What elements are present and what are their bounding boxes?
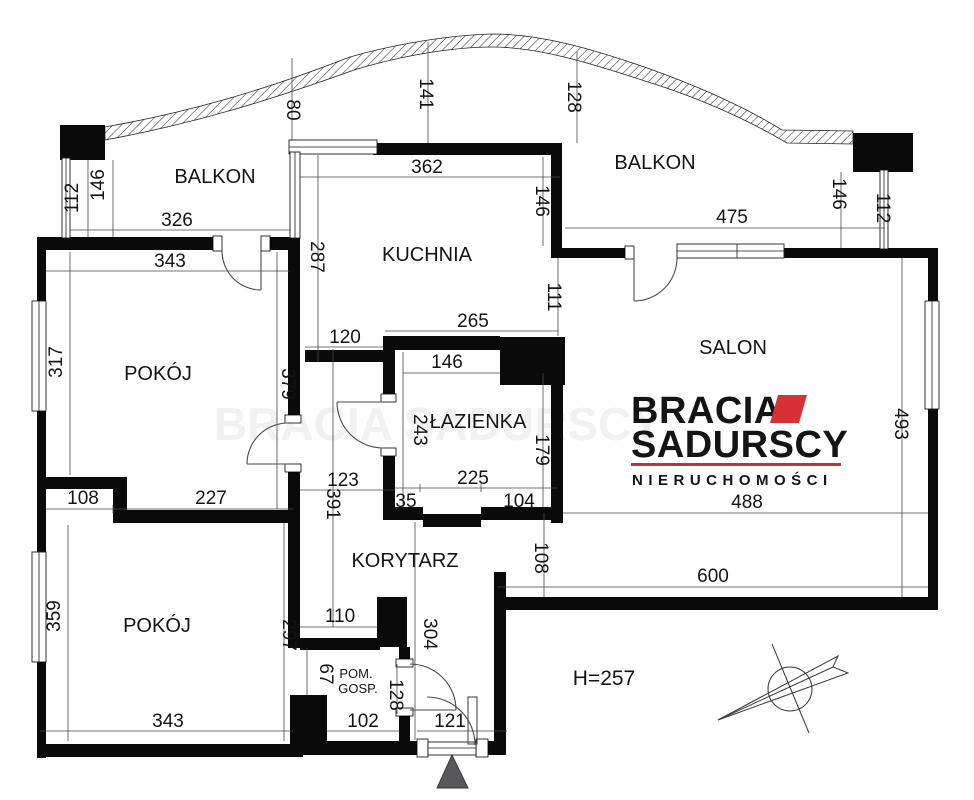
door-jamb: [396, 659, 413, 667]
dim-120: 120: [329, 327, 361, 348]
door-jamb: [476, 739, 488, 757]
wall-segment: [37, 744, 303, 757]
dim-141: 141: [415, 78, 436, 110]
room-label-pokoj-top: POKÓJ: [124, 362, 192, 385]
floor-plan-page: BRACIA SADURSCY: [0, 0, 974, 800]
balcony-pillar-left: [60, 125, 105, 160]
door-jamb: [625, 246, 634, 259]
room-label-korytarz: KORYTARZ: [351, 550, 458, 572]
dim-35: 35: [395, 491, 416, 512]
dim-287: 287: [306, 241, 327, 273]
dim-243: 243: [409, 414, 430, 446]
dim-67: 67: [315, 663, 336, 684]
dim-108-left: 108: [67, 488, 99, 509]
room-label-pom-gosp-1: POM.: [339, 666, 372, 681]
dim-128-top: 128: [563, 81, 584, 113]
dim-121: 121: [434, 711, 466, 732]
door-jamb: [381, 448, 396, 456]
dim-102: 102: [347, 711, 379, 732]
wall-segment: [373, 143, 560, 155]
dim-112-left: 112: [62, 183, 83, 213]
dim-111: 111: [543, 283, 564, 312]
dim-304: 304: [419, 618, 440, 650]
bathroom-pillar: [500, 337, 565, 385]
floor-plan-drawing: BRACIA SADURSCY: [0, 0, 974, 800]
wall-segment: [290, 695, 327, 745]
dim-391: 391: [322, 488, 343, 520]
dim-362: 362: [411, 157, 443, 178]
dim-297: 297: [278, 619, 299, 651]
door-jamb: [285, 415, 301, 423]
dim-146-kuchnia: 146: [531, 185, 552, 217]
balcony-pillar-right: [853, 133, 913, 172]
door-jamb: [261, 236, 270, 251]
wall-segment: [113, 510, 293, 523]
dim-146-left: 146: [88, 169, 109, 201]
dim-317: 317: [46, 346, 67, 378]
wall-segment: [305, 350, 383, 362]
dim-179: 179: [531, 434, 552, 466]
dim-600: 600: [697, 566, 729, 587]
wall-segment: [399, 716, 410, 745]
door-jamb: [213, 236, 222, 251]
dim-265: 265: [457, 311, 489, 332]
dim-146-right: 146: [828, 178, 849, 210]
dim-343-bottom: 343: [152, 711, 184, 732]
logo-word-sadurscy: SADURSCY: [631, 424, 848, 466]
dim-379: 379: [277, 368, 298, 400]
dim-326: 326: [161, 210, 193, 231]
wall-segment: [551, 248, 625, 258]
dim-112-right: 112: [872, 193, 893, 223]
ceiling-height-note: H=257: [573, 667, 635, 690]
door-jamb: [381, 394, 396, 402]
wall-segment: [383, 336, 395, 402]
dim-110: 110: [325, 606, 355, 627]
logo-word-nieruchomosci: NIERUCHOMOŚCI: [632, 471, 833, 489]
dim-128-door: 128: [385, 679, 406, 711]
dim-104: 104: [503, 491, 535, 512]
wall-segment: [300, 638, 380, 650]
wall-segment: [494, 597, 938, 610]
door-jamb: [285, 464, 301, 472]
wall-segment: [423, 514, 481, 527]
dim-493: 493: [890, 408, 911, 440]
room-label-lazienka: ŁAZIENKA: [430, 411, 527, 433]
dim-475: 475: [716, 207, 748, 228]
logo-underline: [631, 463, 841, 466]
dim-488: 488: [731, 492, 763, 513]
room-label-pokoj-bottom: POKÓJ: [123, 614, 191, 637]
room-label-pom-gosp-2: GOSP.: [338, 681, 378, 696]
dim-146-lazienka: 146: [431, 352, 463, 373]
wall-segment: [783, 248, 933, 258]
door-jamb: [417, 739, 428, 757]
room-label-salon: SALON: [699, 337, 767, 359]
room-label-balkon-left: BALKON: [174, 166, 255, 188]
room-label-balkon-right: BALKON: [614, 152, 695, 174]
room-label-kuchnia: KUCHNIA: [382, 244, 473, 266]
dim-80: 80: [282, 99, 303, 120]
wall-segment: [386, 336, 500, 350]
wall-segment: [377, 597, 407, 647]
dim-343-top: 343: [154, 251, 186, 272]
dim-227: 227: [195, 488, 227, 509]
dim-359: 359: [44, 600, 65, 632]
wall-segment: [37, 237, 213, 250]
dim-225: 225: [457, 468, 489, 489]
dim-108-salon: 108: [530, 542, 551, 574]
